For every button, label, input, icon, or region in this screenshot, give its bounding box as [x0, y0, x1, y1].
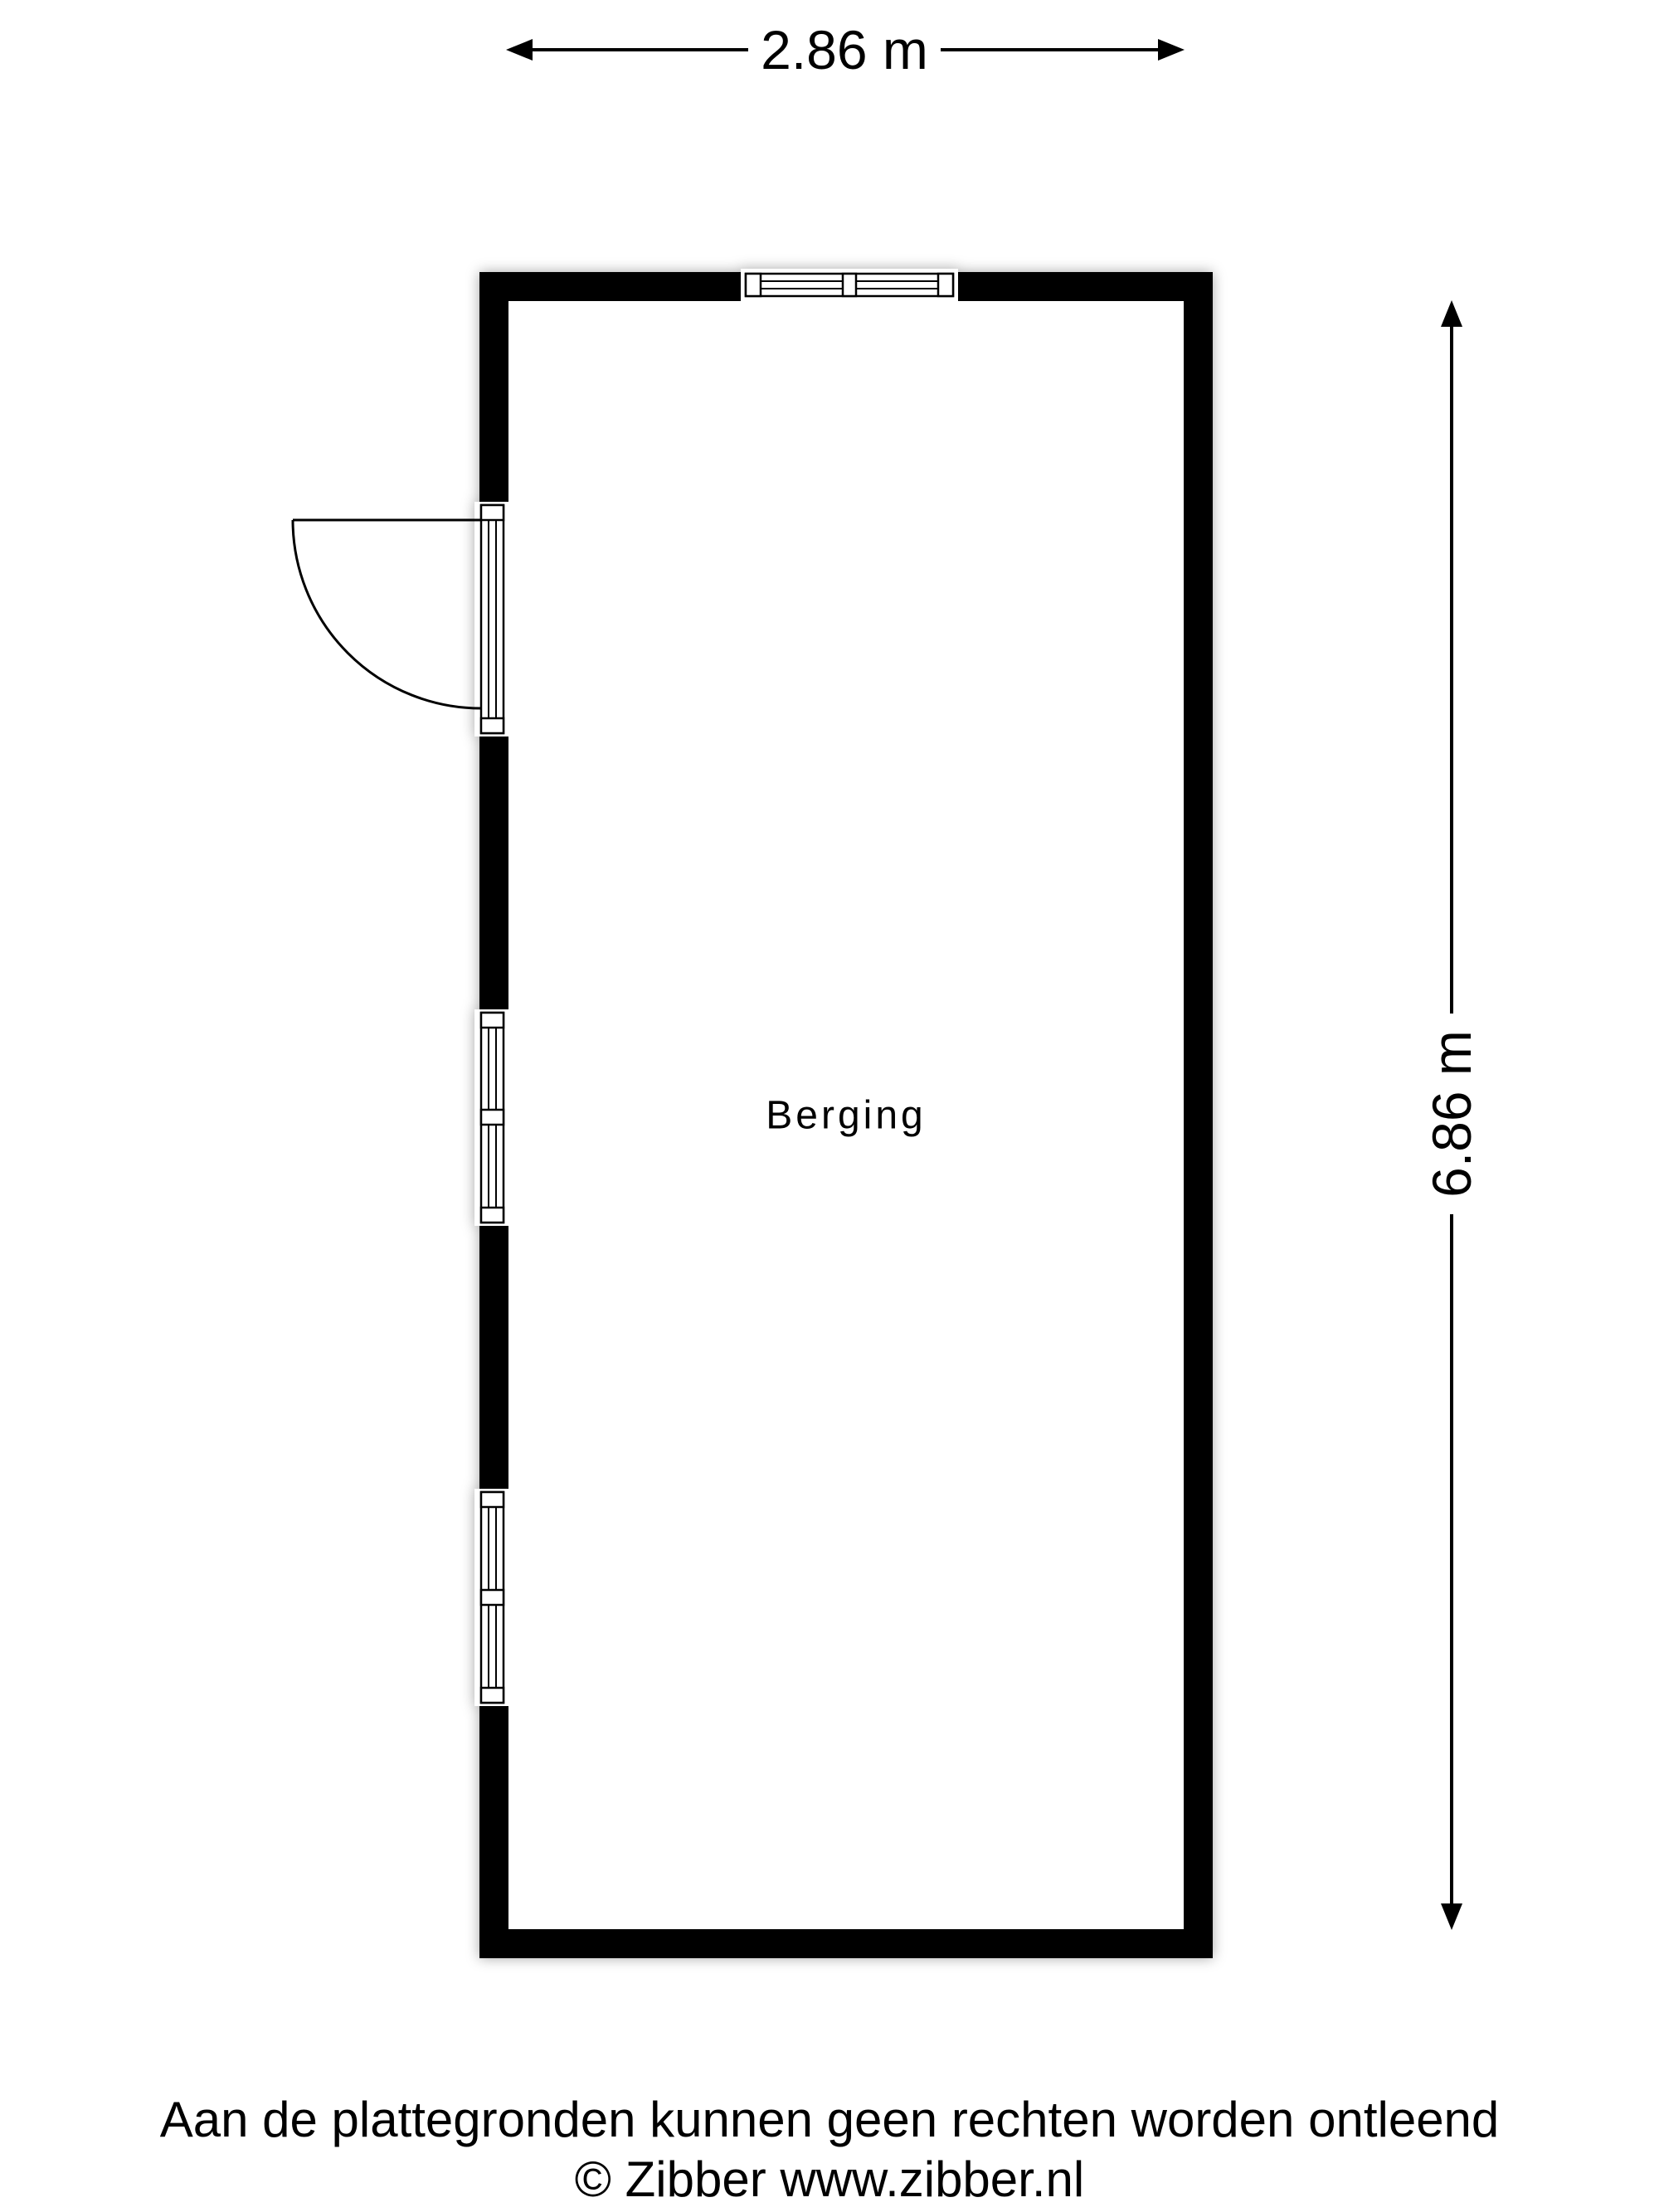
arrow-left-icon — [506, 39, 533, 61]
dimension-width: 2.86 m — [506, 19, 1185, 80]
dimension-height: 6.86 m — [1421, 300, 1482, 1930]
floor-plan-drawing: 2.86 m 6.86 m Berging — [0, 0, 1659, 2212]
arrow-right-icon — [1158, 39, 1185, 61]
left-window-lower — [481, 1492, 504, 1703]
door-panel — [481, 505, 504, 733]
door-swing — [293, 520, 481, 708]
door-swing-arc — [293, 520, 481, 708]
arrow-up-icon — [1441, 300, 1462, 327]
copyright-text: © Zibber www.zibber.nl — [0, 2150, 1659, 2210]
left-window-middle — [481, 1013, 504, 1223]
top-window — [746, 274, 953, 296]
footer: Aan de plattegronden kunnen geen rechten… — [0, 2090, 1659, 2210]
disclaimer-text: Aan de plattegronden kunnen geen rechten… — [0, 2090, 1659, 2150]
arrow-down-icon — [1441, 1903, 1462, 1930]
height-dimension-label: 6.86 m — [1421, 1030, 1482, 1198]
width-dimension-label: 2.86 m — [761, 19, 928, 80]
room-label: Berging — [766, 1094, 926, 1138]
floor-plan-canvas: 2.86 m 6.86 m Berging Aan de plattegrond… — [0, 0, 1659, 2212]
